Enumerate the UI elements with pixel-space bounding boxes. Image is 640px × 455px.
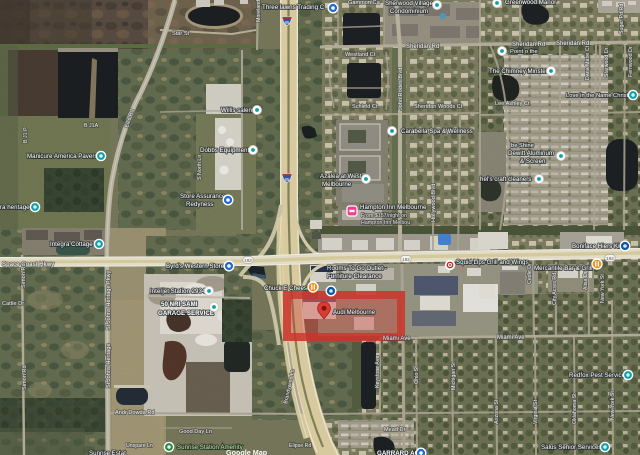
svg-text:Mead Dr: Mead Dr [384, 427, 406, 433]
svg-text:Star St: Star St [172, 31, 190, 37]
svg-text:Alisa Dr: Alisa Dr [583, 271, 589, 290]
svg-text:Miami Ave: Miami Ave [497, 335, 525, 341]
svg-text:Interjet Station 2934: Interjet Station 2934 [150, 288, 206, 295]
svg-text:Mercantile Bar & Grill: Mercantile Bar & Grill [534, 265, 592, 272]
svg-text:Virginia St: Virginia St [533, 399, 539, 424]
svg-text:Melbourne: Melbourne [322, 181, 352, 188]
svg-text:Furniture Clearance: Furniture Clearance [327, 273, 382, 280]
svg-text:Store Assurance: Store Assurance [180, 193, 226, 200]
svg-text:B J1A: B J1A [84, 123, 99, 129]
svg-text:Keystone Ave: Keystone Ave [375, 356, 381, 388]
svg-text:S North Ln: S North Ln [197, 155, 203, 180]
svg-text:Three lawns Trading C: Three lawns Trading C [262, 4, 325, 11]
svg-text:Dobbs Equipment: Dobbs Equipment [200, 147, 249, 154]
svg-text:New York St: New York St [610, 391, 616, 420]
svg-text:Hampton Inn Melbourne: Hampton Inn Melbourne [360, 204, 427, 211]
svg-text:Willis salen: Willis salen [221, 107, 253, 114]
svg-text:hel's craft cleaners: hel's craft cleaners [480, 176, 531, 183]
svg-text:50 NRI SAMI: 50 NRI SAMI [161, 301, 198, 308]
svg-text:Dewitt Aluminum: Dewitt Aluminum [508, 150, 554, 157]
svg-text:St Johns Heritage: St Johns Heritage [106, 344, 112, 388]
svg-text:City Acres Rd: City Acres Rd [552, 273, 558, 305]
svg-text:St Johns Heritage Pkwy: St Johns Heritage Pkwy [106, 270, 112, 330]
svg-text:be Shine: be Shine [511, 143, 534, 149]
svg-text:Audi Melbourne: Audi Melbourne [333, 310, 376, 316]
svg-text:Manicure America Pavers: Manicure America Pavers [27, 153, 98, 160]
svg-text:B J1 P: B J1 P [23, 127, 29, 143]
svg-text:From $157/night on: From $157/night on [361, 213, 407, 219]
svg-text:Sheridan Rd: Sheridan Rd [512, 42, 545, 48]
svg-text:Greenwood Manor: Greenwood Manor [505, 0, 556, 6]
svg-text:Redyness: Redyness [186, 201, 214, 208]
svg-text:Starwood Dr: Starwood Dr [604, 47, 610, 77]
svg-text:Gammon Ca: Gammon Ca [348, 0, 381, 6]
svg-text:GARAGE SERVICE: GARAGE SERVICE [158, 310, 214, 317]
svg-text:The Chimney Minster: The Chimney Minster [489, 68, 548, 75]
svg-text:Boniface Hiers Kia: Boniface Hiers Kia [572, 243, 623, 250]
svg-text:New York St: New York St [600, 274, 606, 303]
svg-text:Arizona St: Arizona St [494, 399, 500, 424]
svg-text:John Rodes Blvd: John Rodes Blvd [398, 68, 404, 110]
svg-text:Hampton Inn Melbou: Hampton Inn Melbou [361, 220, 410, 226]
svg-text:Space Coast Hkwy: Space Coast Hkwy [2, 261, 55, 268]
svg-text:Squid Lips Grill and Wings: Squid Lips Grill and Wings [456, 259, 529, 266]
svg-text:Andr Dowda Rd: Andr Dowda Rd [115, 410, 155, 416]
svg-text:Elipse Rd: Elipse Rd [289, 443, 311, 449]
svg-text:Google Map: Google Map [226, 448, 268, 455]
svg-text:GARRARD AC: GARRARD AC [377, 450, 420, 455]
svg-text:Michigan St: Michigan St [451, 362, 457, 390]
svg-text:Ohio St: Ohio St [414, 366, 420, 384]
svg-text:Point o the: Point o the [510, 49, 538, 55]
svg-text:Sugar Pd Rd: Sugar Pd Rd [619, 4, 625, 34]
svg-text:Condominium: Condominium [390, 8, 428, 15]
svg-text:Integra Cottage: Integra Cottage [50, 241, 93, 248]
svg-text:Rooms To Go Outlet -: Rooms To Go Outlet - [327, 265, 387, 272]
svg-text:Redfox Pest Service: Redfox Pest Service [569, 372, 626, 379]
svg-text:Oklahoma St: Oklahoma St [572, 393, 578, 424]
svg-text:Salus Senior Services: Salus Senior Services [541, 444, 602, 451]
svg-text:Simon Rd: Simon Rd [21, 263, 27, 288]
svg-text:Cedle Dr: Cedle Dr [527, 263, 533, 284]
svg-text:Schield Ct: Schield Ct [352, 104, 378, 110]
svg-text:Hollywood Blvd: Hollywood Blvd [431, 184, 437, 222]
svg-text:Lee Ashley Ct: Lee Ashley Ct [495, 101, 530, 107]
svg-text:Chuck E Cheese: Chuck E Cheese [264, 285, 311, 292]
svg-text:Simon Rd: Simon Rd [22, 365, 28, 390]
svg-text:Good Day Ln: Good Day Ln [179, 429, 212, 435]
svg-text:Morelands: Morelands [256, 0, 262, 22]
svg-text:Fernwood Dr: Fernwood Dr [628, 46, 634, 77]
svg-text:Byrd's Western Store: Byrd's Western Store [166, 263, 225, 270]
svg-text:Miami Ave: Miami Ave [383, 336, 411, 342]
svg-text:Carabella Spa & Wellness: Carabella Spa & Wellness [401, 128, 473, 135]
svg-text:Love in the Name Christ: Love in the Name Christ [566, 93, 629, 99]
svg-text:Westland Ct: Westland Ct [345, 52, 376, 58]
svg-text:Sheridan Woods Ct: Sheridan Woods Ct [414, 104, 463, 110]
svg-text:ra heritage: ra heritage [0, 204, 30, 211]
svg-text:Unspare Ln: Unspare Ln [126, 443, 153, 449]
svg-text:& Screen: & Screen [520, 158, 546, 165]
svg-text:Sherwood Village: Sherwood Village [385, 0, 434, 7]
svg-text:Sunrise Estat: Sunrise Estat [89, 450, 126, 455]
svg-text:Sheridan Rd: Sheridan Rd [406, 44, 439, 50]
svg-text:Dana Marie Ct: Dana Marie Ct [585, 45, 591, 80]
svg-text:Azalea at West: Azalea at West [320, 173, 362, 180]
svg-text:Cattle Dr: Cattle Dr [2, 301, 24, 307]
